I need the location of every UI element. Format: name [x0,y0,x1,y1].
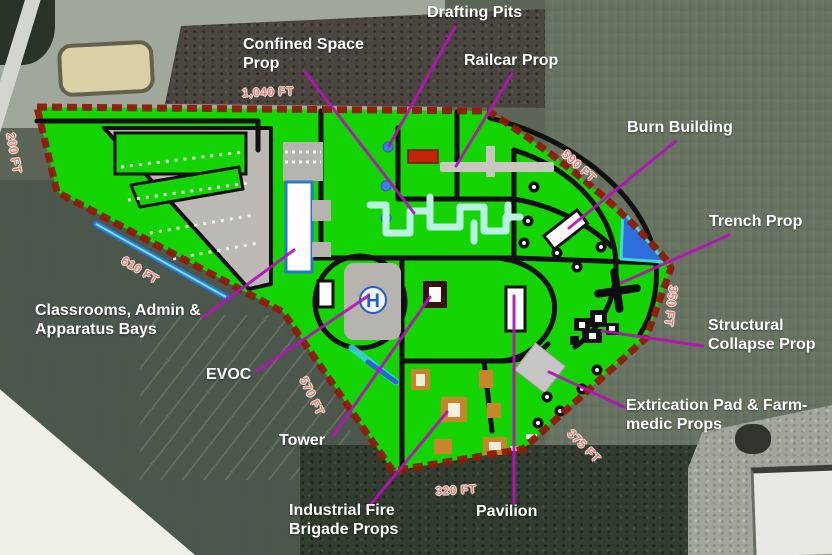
helipad-icon: H [366,291,380,312]
classrooms-building [286,182,312,272]
aerial-site-map: H [0,0,832,555]
site-plan-overlay: H [0,0,832,555]
building-wing-1 [312,200,331,221]
railcar-car [486,146,495,177]
red-prop [408,150,438,163]
tower-shape [429,287,441,302]
apparatus-driveway [283,142,323,181]
building-wing-2 [312,242,331,257]
small-white-building [318,281,333,307]
